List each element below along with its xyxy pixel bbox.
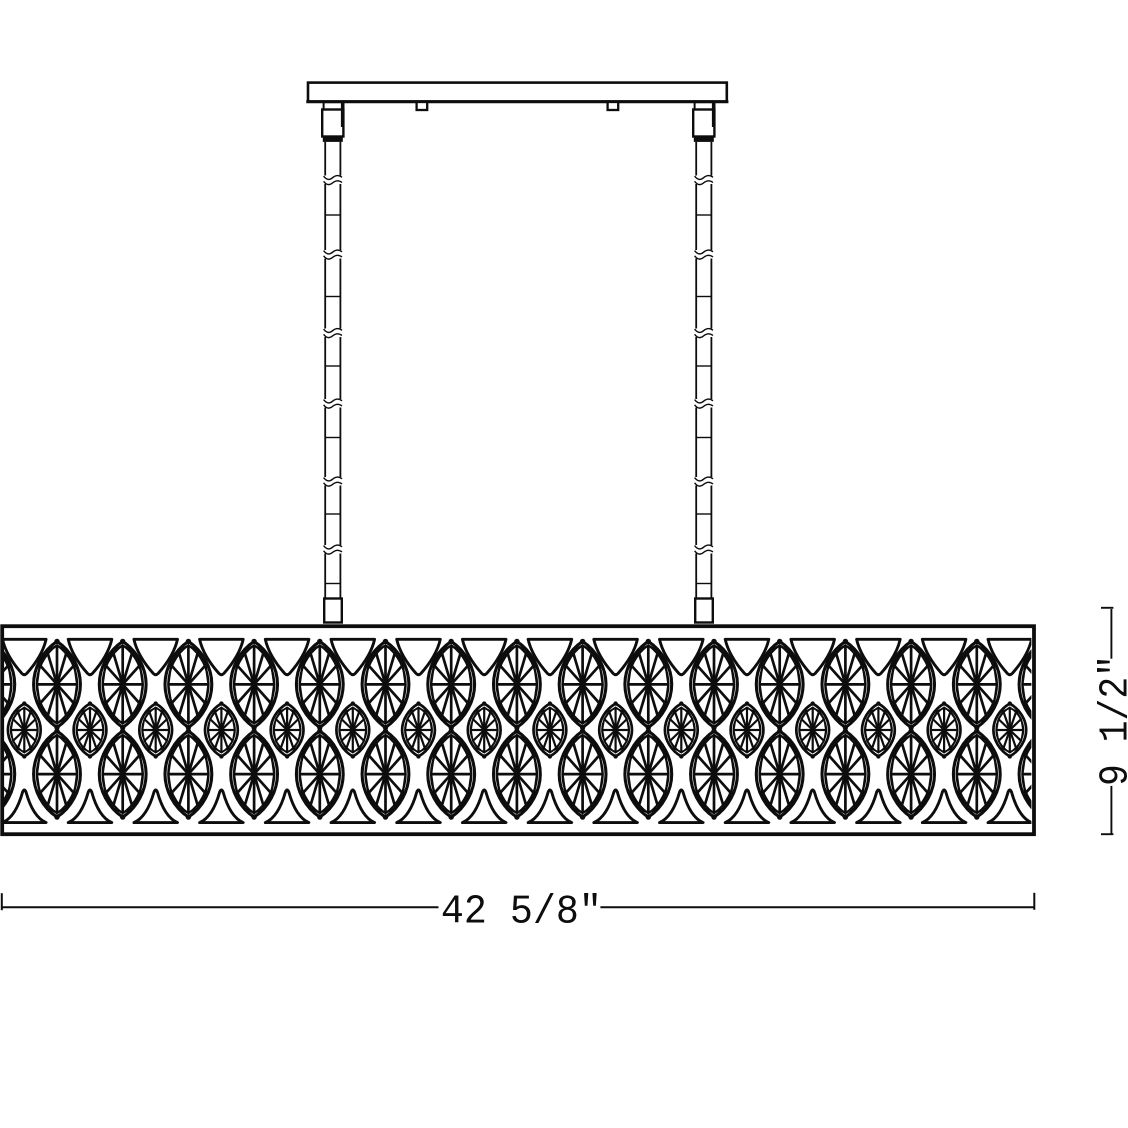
svg-text:42 5/8": 42 5/8" xyxy=(441,890,602,936)
svg-text:9 1/2": 9 1/2" xyxy=(1093,655,1128,786)
